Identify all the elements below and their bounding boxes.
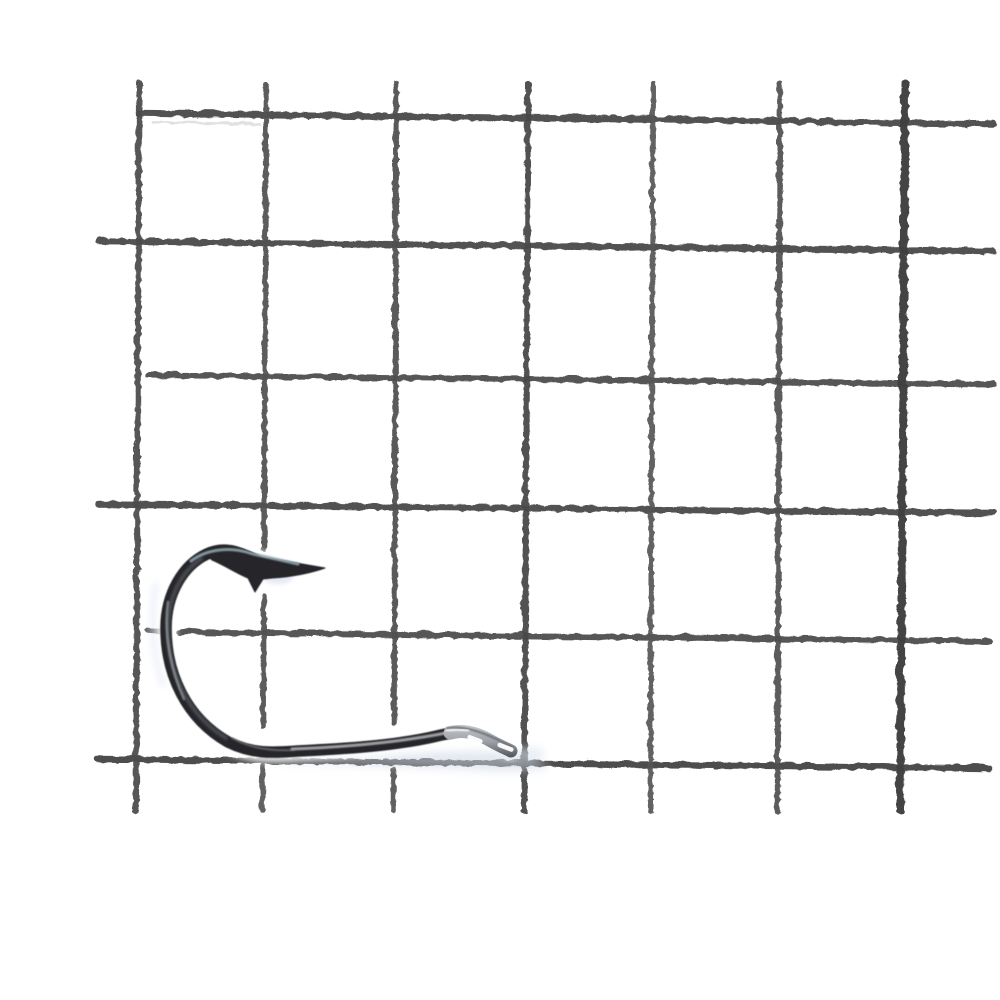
product-photo-fishing-hook-on-wire-grid bbox=[0, 0, 1000, 1000]
h-wire-2 bbox=[98, 240, 992, 250]
v-wire-6 bbox=[776, 82, 779, 810]
v-wire-7 bbox=[899, 82, 904, 810]
eye-hump-glint bbox=[447, 730, 468, 732]
h-wire-5 bbox=[178, 631, 988, 640]
v-wire-3a bbox=[393, 82, 395, 722]
v-wire-2b bbox=[262, 595, 263, 725]
v-wire-1 bbox=[135, 82, 138, 810]
v-wire-5 bbox=[649, 82, 652, 810]
h-wire-4 bbox=[97, 503, 992, 512]
v-wire-4 bbox=[523, 82, 527, 810]
h-wire-3 bbox=[147, 374, 992, 383]
hook-wire bbox=[166, 550, 457, 752]
v-wire-2c bbox=[261, 765, 262, 810]
h-wire-1-ghost bbox=[152, 121, 258, 123]
fishing-hook bbox=[153, 547, 550, 771]
photo-canvas bbox=[0, 0, 1000, 1000]
v-wire-2a bbox=[263, 83, 265, 548]
wire-mesh-grid bbox=[97, 82, 992, 810]
eye-right-fringe bbox=[519, 746, 545, 760]
